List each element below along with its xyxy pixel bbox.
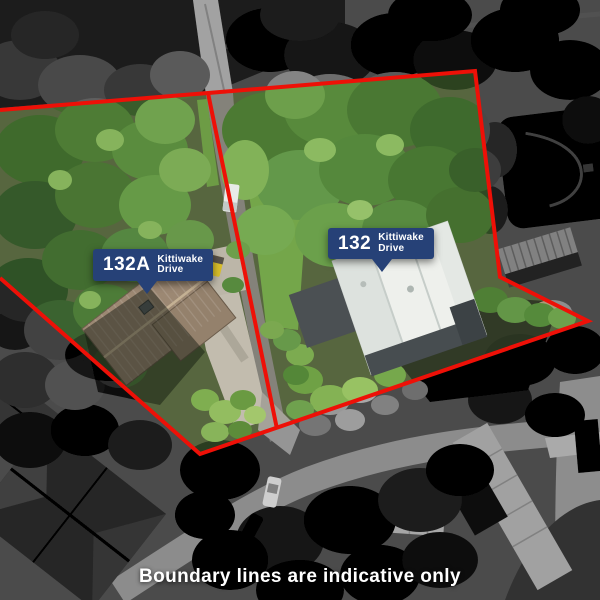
- boundary-disclaimer-caption: Boundary lines are indicative only: [0, 566, 600, 588]
- address-label-132: 132 Kittiwake Drive: [328, 228, 434, 259]
- aerial-scene-svg: [0, 0, 600, 600]
- address-label-132a: 132A Kittiwake Drive: [93, 249, 213, 281]
- address-number: 132A: [103, 254, 150, 276]
- address-number: 132: [338, 233, 371, 255]
- aerial-property-photo: 132A Kittiwake Drive 132 Kittiwake Drive…: [0, 0, 600, 600]
- street-name: Kittiwake Drive: [378, 233, 424, 254]
- street-name: Kittiwake Drive: [157, 255, 203, 276]
